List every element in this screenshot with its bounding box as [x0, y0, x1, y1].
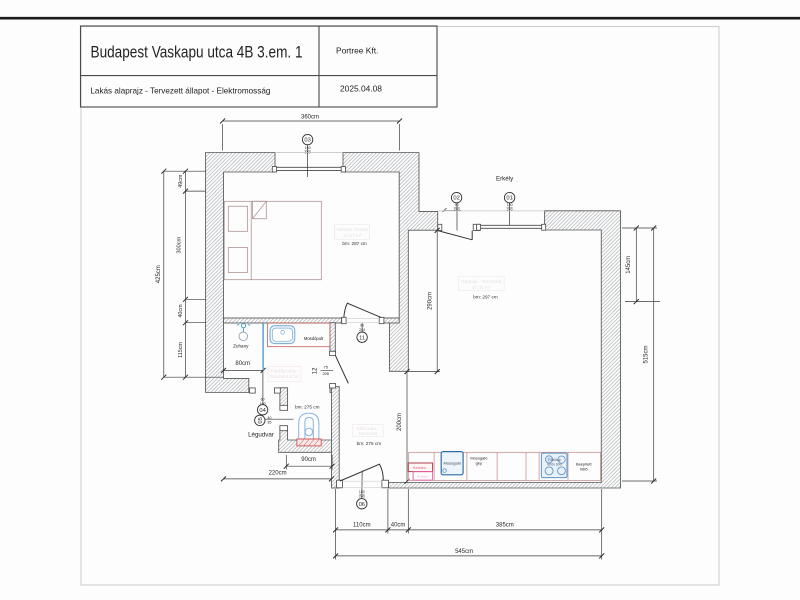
svg-text:200cm: 200cm — [397, 413, 403, 431]
svg-text:290cm: 290cm — [428, 292, 434, 310]
svg-text:Hálószoba - Tervezett: Hálószoba - Tervezett — [337, 227, 368, 232]
svg-text:40cm: 40cm — [178, 304, 184, 318]
svg-text:49cm: 49cm — [178, 174, 184, 188]
svg-text:2025.04.08: 2025.04.08 — [340, 84, 382, 94]
svg-text:240: 240 — [359, 495, 365, 499]
svg-text:150: 150 — [507, 203, 513, 207]
svg-text:Tervezett 4.57 m²: Tervezett 4.57 m² — [270, 374, 300, 379]
svg-text:85: 85 — [268, 421, 272, 425]
svg-text:205: 205 — [322, 371, 329, 376]
svg-text:01: 01 — [506, 196, 512, 202]
svg-text:115cm: 115cm — [178, 342, 184, 358]
svg-text:27.32 m²: 27.32 m² — [472, 285, 491, 290]
svg-text:90: 90 — [455, 203, 459, 207]
svg-text:11: 11 — [359, 335, 365, 341]
svg-text:40: 40 — [268, 416, 272, 420]
svg-text:Mosogató: Mosogató — [444, 461, 462, 466]
svg-text:300cm: 300cm — [177, 236, 183, 253]
svg-text:Zuhany: Zuhany — [233, 343, 249, 348]
svg-text:150: 150 — [305, 146, 311, 150]
svg-text:Radiátor: Radiátor — [413, 466, 427, 470]
svg-text:02: 02 — [453, 196, 459, 202]
svg-text:Légudvar: Légudvar — [248, 431, 274, 438]
svg-text:06: 06 — [359, 502, 365, 508]
svg-text:bm: 287 cm: bm: 287 cm — [342, 241, 367, 246]
svg-text:gép: gép — [476, 460, 483, 465]
svg-text:03: 03 — [304, 138, 310, 144]
svg-text:05: 05 — [258, 417, 264, 423]
svg-text:190: 190 — [260, 402, 266, 406]
svg-text:Budapest Vaskapu utca 4B 3.em.: Budapest Vaskapu utca 4B 3.em. 1 — [91, 44, 303, 62]
svg-text:60: 60 — [261, 397, 265, 401]
svg-text:12.87 m²: 12.87 m² — [343, 233, 362, 238]
svg-text:12: 12 — [313, 367, 319, 374]
svg-text:545cm: 545cm — [455, 549, 473, 555]
svg-text:Erkély: Erkély — [496, 175, 514, 182]
svg-text:Mosdópult: Mosdópult — [304, 336, 324, 341]
svg-text:75: 75 — [324, 365, 328, 370]
svg-text:40cm: 40cm — [391, 523, 406, 529]
svg-text:90cm: 90cm — [301, 457, 316, 463]
svg-text:bm: 275 cm: bm: 275 cm — [357, 441, 382, 446]
svg-text:Fürdőszoba -: Fürdőszoba - — [271, 369, 300, 374]
svg-text:240: 240 — [359, 328, 365, 332]
svg-text:Portree Kft.: Portree Kft. — [336, 46, 378, 56]
svg-text:515cm: 515cm — [643, 345, 649, 363]
svg-text:80cm: 80cm — [235, 361, 250, 367]
svg-text:150: 150 — [359, 490, 365, 494]
svg-text:bm: 297 cm: bm: 297 cm — [473, 294, 498, 299]
svg-text:Nappali - Tervezett: Nappali - Tervezett — [461, 279, 502, 284]
svg-text:220cm: 220cm — [269, 470, 287, 476]
svg-text:360cm: 360cm — [301, 115, 319, 121]
svg-text:425cm: 425cm — [156, 265, 162, 283]
svg-text:385cm: 385cm — [496, 523, 514, 529]
svg-text:Radiátor: Radiátor — [417, 474, 428, 478]
svg-text:04: 04 — [259, 408, 266, 414]
svg-text:Tervezett: Tervezett — [358, 431, 378, 436]
svg-text:hűtő: hűtő — [580, 467, 588, 472]
svg-text:145cm: 145cm — [626, 256, 632, 274]
svg-text:Lakás alaprajz - Tervezett áll: Lakás alaprajz - Tervezett állapot - Ele… — [90, 85, 270, 95]
svg-text:bm: 275 cm: bm: 275 cm — [295, 404, 320, 409]
svg-text:600x 600: 600x 600 — [547, 462, 561, 466]
svg-text:110cm: 110cm — [353, 523, 371, 529]
